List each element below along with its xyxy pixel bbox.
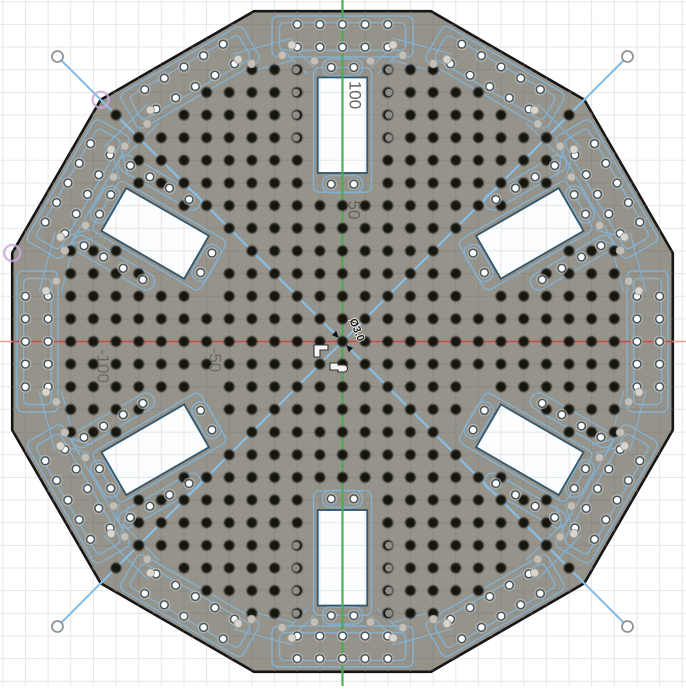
svg-text:50: 50 [345,201,364,220]
svg-text:-50: -50 [206,348,225,373]
svg-text:100: 100 [346,81,365,109]
svg-text:-100: -100 [94,349,113,383]
